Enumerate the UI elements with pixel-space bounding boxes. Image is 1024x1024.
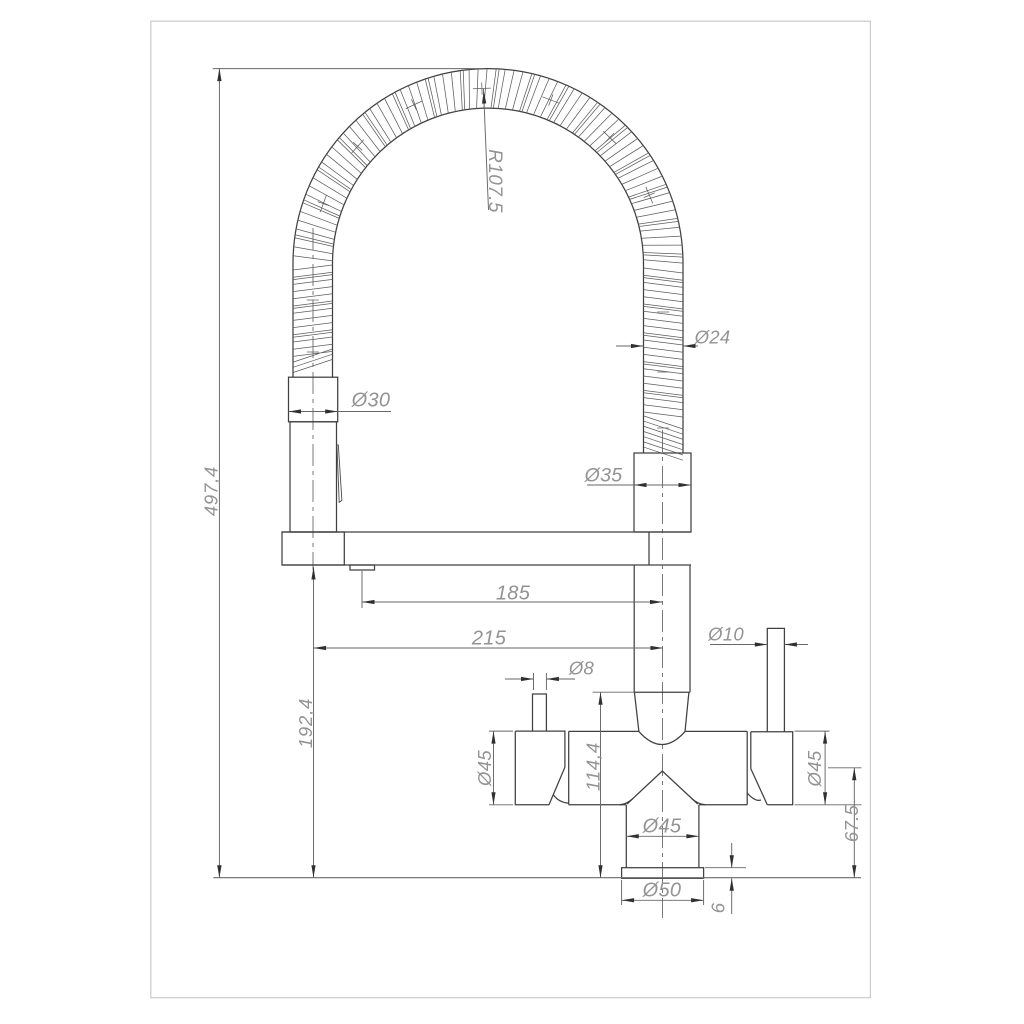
svg-text:Ø45: Ø45 <box>642 816 682 838</box>
svg-text:Ø35: Ø35 <box>584 465 623 487</box>
svg-text:Ø24: Ø24 <box>694 327 731 348</box>
svg-text:6: 6 <box>708 902 729 913</box>
svg-text:185: 185 <box>496 583 531 605</box>
svg-text:Ø10: Ø10 <box>707 624 744 645</box>
svg-text:Ø50: Ø50 <box>642 880 682 902</box>
svg-text:497,4: 497,4 <box>200 466 221 516</box>
svg-text:Ø30: Ø30 <box>351 390 391 412</box>
svg-text:67.5: 67.5 <box>841 804 862 842</box>
svg-text:Ø45: Ø45 <box>804 750 825 787</box>
svg-text:215: 215 <box>471 628 507 650</box>
svg-text:R107.5: R107.5 <box>484 149 505 213</box>
svg-text:Ø45: Ø45 <box>474 750 495 787</box>
svg-text:114,4: 114,4 <box>582 742 603 791</box>
svg-text:192,4: 192,4 <box>295 698 316 748</box>
svg-text:Ø8: Ø8 <box>568 658 595 679</box>
